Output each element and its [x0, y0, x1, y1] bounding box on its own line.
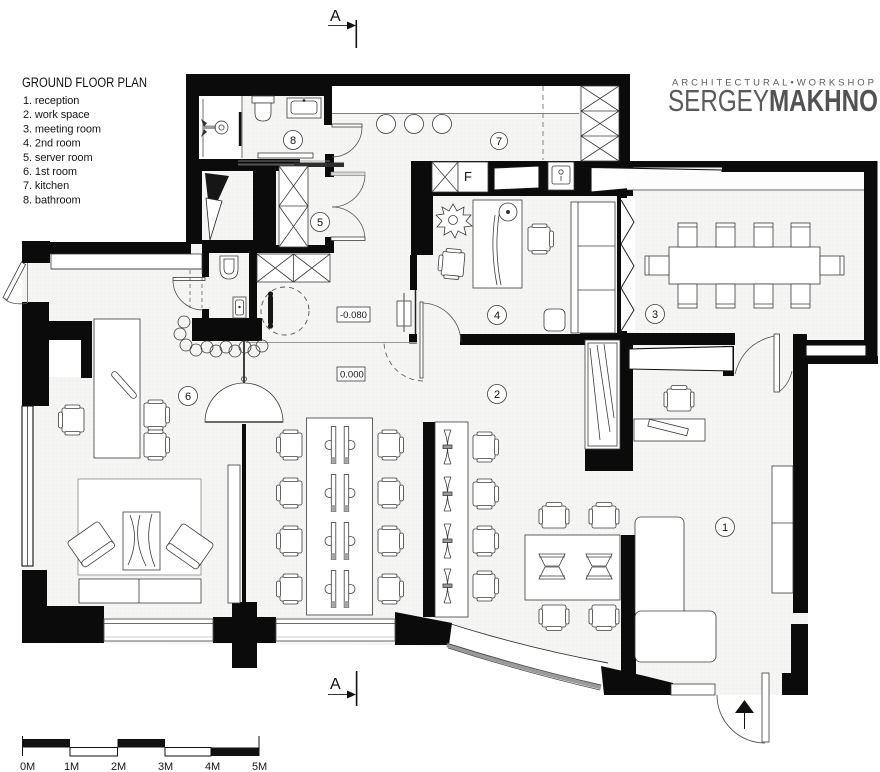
svg-text:2M: 2M [111, 761, 126, 772]
svg-text:1: 1 [722, 522, 728, 534]
svg-text:3. meeting room: 3. meeting room [23, 123, 101, 135]
svg-text:1M: 1M [64, 761, 79, 772]
svg-text:8. bathroom: 8. bathroom [23, 194, 81, 206]
svg-text:2: 2 [494, 389, 500, 401]
svg-text:MAKHNO: MAKHNO [769, 83, 878, 118]
svg-text:2. work space: 2. work space [23, 109, 90, 121]
svg-text:5M: 5M [252, 761, 267, 772]
svg-text:6. 1st room: 6. 1st room [23, 166, 77, 178]
svg-text:7: 7 [496, 136, 502, 148]
svg-text:A: A [330, 676, 341, 693]
svg-text:F: F [464, 169, 472, 184]
svg-text:GROUND FLOOR PLAN: GROUND FLOOR PLAN [22, 75, 147, 90]
svg-text:SERGEY: SERGEY [668, 83, 769, 118]
svg-text:4. 2nd room: 4. 2nd room [23, 138, 81, 150]
svg-text:7. kitchen: 7. kitchen [23, 180, 69, 192]
svg-text:5: 5 [317, 217, 323, 229]
svg-text:4: 4 [494, 310, 500, 322]
svg-text:8: 8 [290, 135, 296, 147]
svg-text:0.000: 0.000 [340, 370, 364, 381]
svg-text:-0.080: -0.080 [340, 310, 367, 321]
svg-text:3: 3 [652, 309, 658, 321]
svg-text:5. server room: 5. server room [23, 152, 93, 164]
svg-text:4M: 4M [205, 761, 220, 772]
svg-text:1. reception: 1. reception [23, 95, 79, 107]
svg-text:3M: 3M [158, 761, 173, 772]
svg-text:A: A [330, 8, 341, 25]
svg-text:6: 6 [185, 391, 191, 403]
svg-text:0M: 0M [20, 761, 35, 772]
